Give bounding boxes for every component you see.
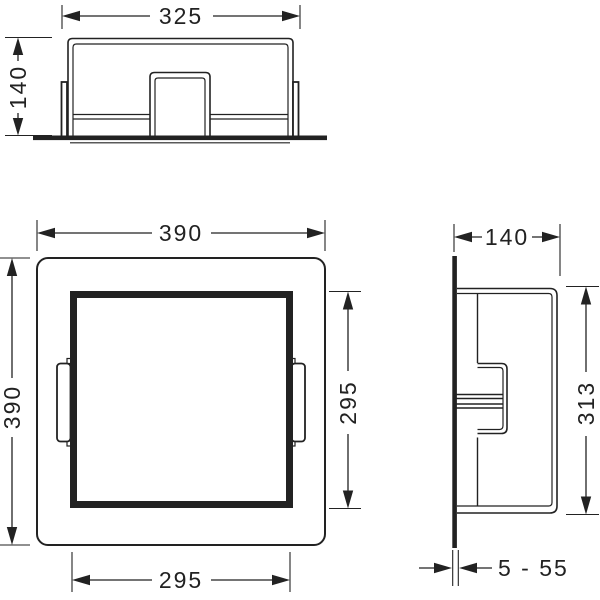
top-view-right-anchor-tab (293, 82, 299, 139)
arrowhead-up-icon (13, 38, 23, 56)
front-view-left-clip (57, 364, 71, 442)
top-view-flange-plate (33, 136, 327, 141)
arrowhead-up-icon (343, 292, 353, 310)
side-view-flange-plate (452, 256, 457, 548)
arrowhead-right-icon (272, 575, 290, 585)
arrowhead-left-icon (459, 563, 477, 573)
dimension-side-height: 313 (566, 287, 599, 515)
top-view-bracket-inner (155, 78, 205, 139)
dimension-top-depth: 140 (5, 38, 52, 136)
dimension-label: 325 (159, 3, 203, 29)
dimension-front-outer-width: 390 (37, 220, 325, 251)
front-view-inner-frame (74, 295, 290, 505)
top-view-left-anchor-tab (62, 82, 68, 139)
dimension-label: 295 (159, 567, 203, 593)
niche-technical-drawing: 325 140 390 390 (0, 0, 600, 600)
arrowhead-left-icon (62, 11, 80, 21)
dimension-label: 5 - 55 (498, 555, 569, 581)
arrowhead-left-icon (454, 232, 472, 242)
front-view (37, 258, 325, 545)
arrowhead-up-icon (581, 287, 591, 305)
side-view-body-inner (457, 294, 552, 507)
arrowhead-right-icon (434, 563, 452, 573)
dimension-side-tile-range: 5 - 55 (419, 550, 569, 586)
dimension-label: 313 (573, 381, 599, 425)
dimension-front-outer-height: 390 (0, 258, 30, 545)
dimension-label: 295 (335, 380, 361, 424)
arrowhead-down-icon (581, 497, 591, 515)
arrowhead-left-icon (72, 575, 90, 585)
dimension-front-inner-width: 295 (72, 552, 290, 593)
top-view-bracket-outline (150, 73, 210, 140)
dimension-front-inner-height: 295 (329, 292, 361, 509)
top-view (33, 39, 327, 143)
arrowhead-right-icon (282, 11, 300, 21)
side-view (452, 256, 557, 548)
front-view-right-clip (292, 364, 306, 442)
dimension-extension-lines (453, 550, 459, 586)
arrowhead-right-icon (542, 232, 560, 242)
dimension-label: 390 (159, 220, 203, 246)
arrowhead-left-icon (37, 228, 55, 238)
side-view-spring-clip-bars (455, 395, 503, 409)
arrowhead-down-icon (7, 527, 17, 545)
arrowhead-up-icon (7, 258, 17, 276)
dimension-side-depth: 140 (454, 224, 560, 276)
dimension-label: 140 (5, 65, 31, 109)
arrowhead-down-icon (13, 118, 23, 136)
dimension-label: 140 (485, 224, 529, 250)
dimension-top-width: 325 (62, 3, 300, 29)
top-view-housing-outline (68, 39, 293, 140)
arrowhead-down-icon (343, 491, 353, 509)
technical-drawing-page: 325 140 390 390 (0, 0, 600, 600)
top-view-housing-inner-wall (73, 44, 288, 139)
dimension-label: 390 (0, 385, 25, 429)
arrowhead-right-icon (307, 228, 325, 238)
top-view-shelf-lines (73, 115, 288, 120)
